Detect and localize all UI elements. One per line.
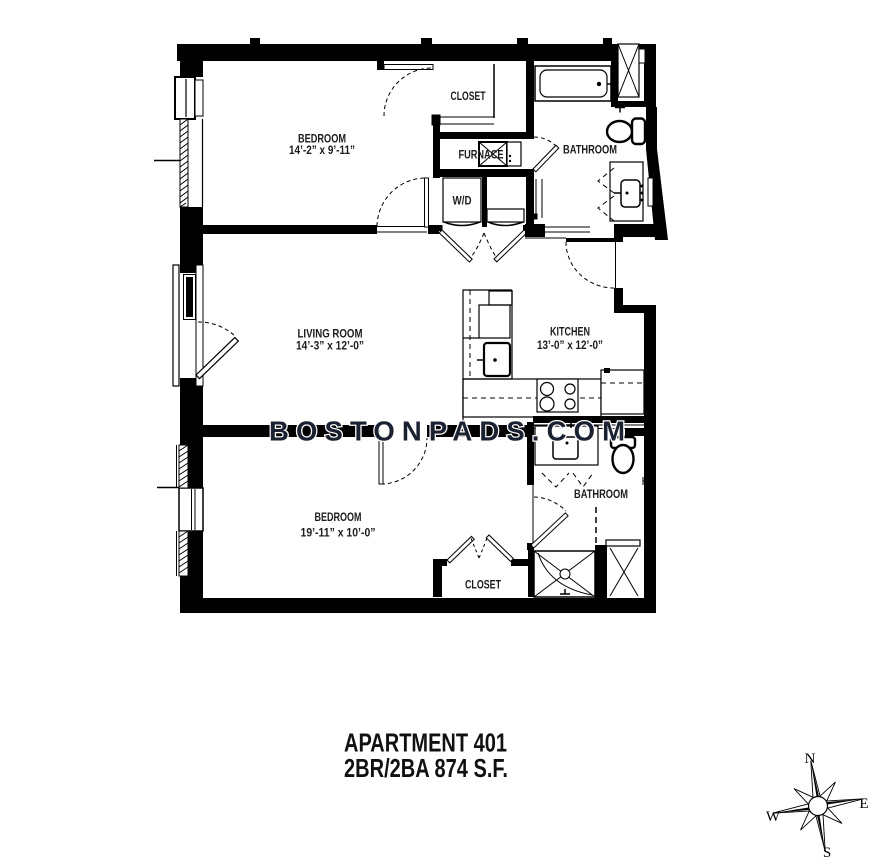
svg-text:KITCHEN: KITCHEN (550, 327, 590, 339)
svg-text:BEDROOM: BEDROOM (298, 134, 346, 146)
svg-text:FURNACE: FURNACE (459, 150, 504, 162)
svg-text:W: W (766, 809, 781, 825)
svg-text:2BR/2BA 874 S.F.: 2BR/2BA 874 S.F. (344, 755, 508, 783)
svg-text:APARTMENT 401: APARTMENT 401 (344, 730, 507, 758)
svg-text:CLOSET: CLOSET (465, 580, 501, 592)
svg-text:BOSTONPADS.COM: BOSTONPADS.COM (269, 416, 631, 447)
svg-text:N: N (805, 751, 816, 767)
svg-text:BATHROOM: BATHROOM (574, 489, 628, 501)
svg-text:CLOSET: CLOSET (451, 91, 486, 103)
svg-text:19’-11” x 10’-0”: 19’-11” x 10’-0” (301, 528, 376, 540)
svg-text:LIVING ROOM: LIVING ROOM (298, 329, 363, 341)
svg-text:E: E (859, 796, 868, 812)
svg-text:13’-0” x 12’-0”: 13’-0” x 12’-0” (537, 340, 603, 352)
svg-text:14’-2” x 9’-11”: 14’-2” x 9’-11” (289, 145, 355, 157)
svg-text:W/D: W/D (453, 196, 472, 208)
svg-text:BATHROOM: BATHROOM (563, 145, 617, 157)
svg-text:14’-3” x 12’-0”: 14’-3” x 12’-0” (296, 341, 364, 353)
svg-text:S: S (823, 845, 831, 861)
svg-text:BEDROOM: BEDROOM (315, 512, 362, 524)
